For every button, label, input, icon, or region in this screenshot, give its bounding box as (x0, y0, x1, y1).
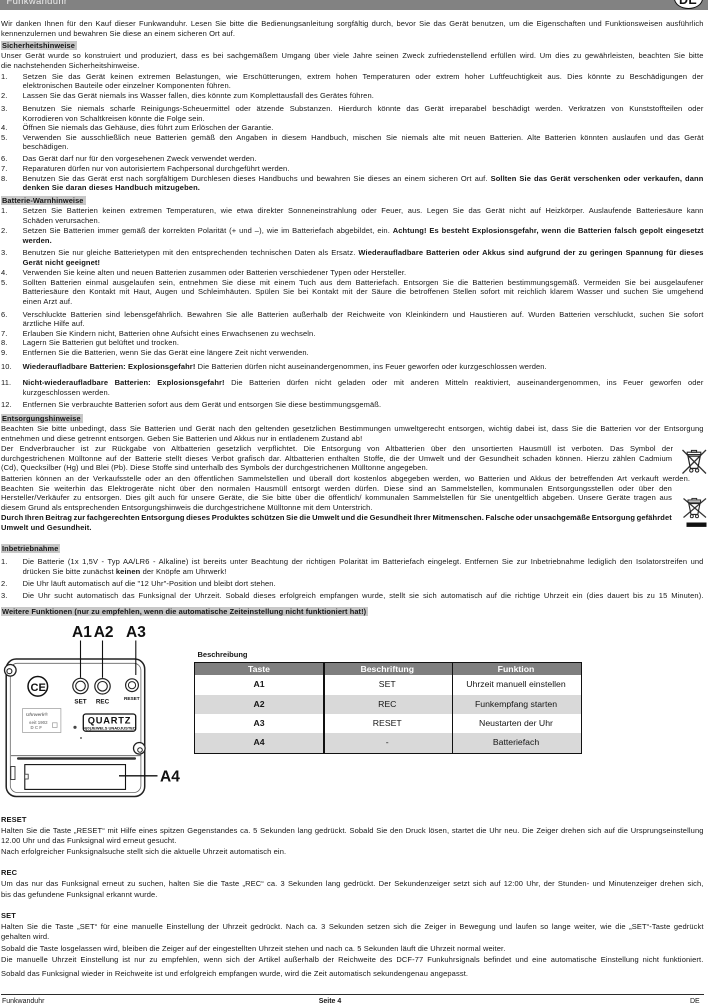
svg-text:D C F: D C F (31, 725, 43, 730)
svg-text:Uhrwerk®: Uhrwerk® (26, 711, 48, 717)
svg-text:REC: REC (96, 699, 110, 706)
svg-text:QUARTZ: QUARTZ (88, 716, 132, 726)
svg-text:SET: SET (74, 699, 86, 706)
svg-text:A2: A2 (94, 624, 114, 641)
svg-text:seit 1902: seit 1902 (29, 720, 48, 725)
svg-text:N(0)JEWELS UNADJUSTED: N(0)JEWELS UNADJUSTED (83, 726, 136, 731)
svg-text:A4: A4 (160, 768, 180, 785)
svg-text:A3: A3 (126, 624, 146, 641)
svg-text:CE: CE (31, 682, 46, 694)
svg-text:A1: A1 (72, 624, 92, 641)
svg-text:RESET: RESET (124, 696, 140, 701)
